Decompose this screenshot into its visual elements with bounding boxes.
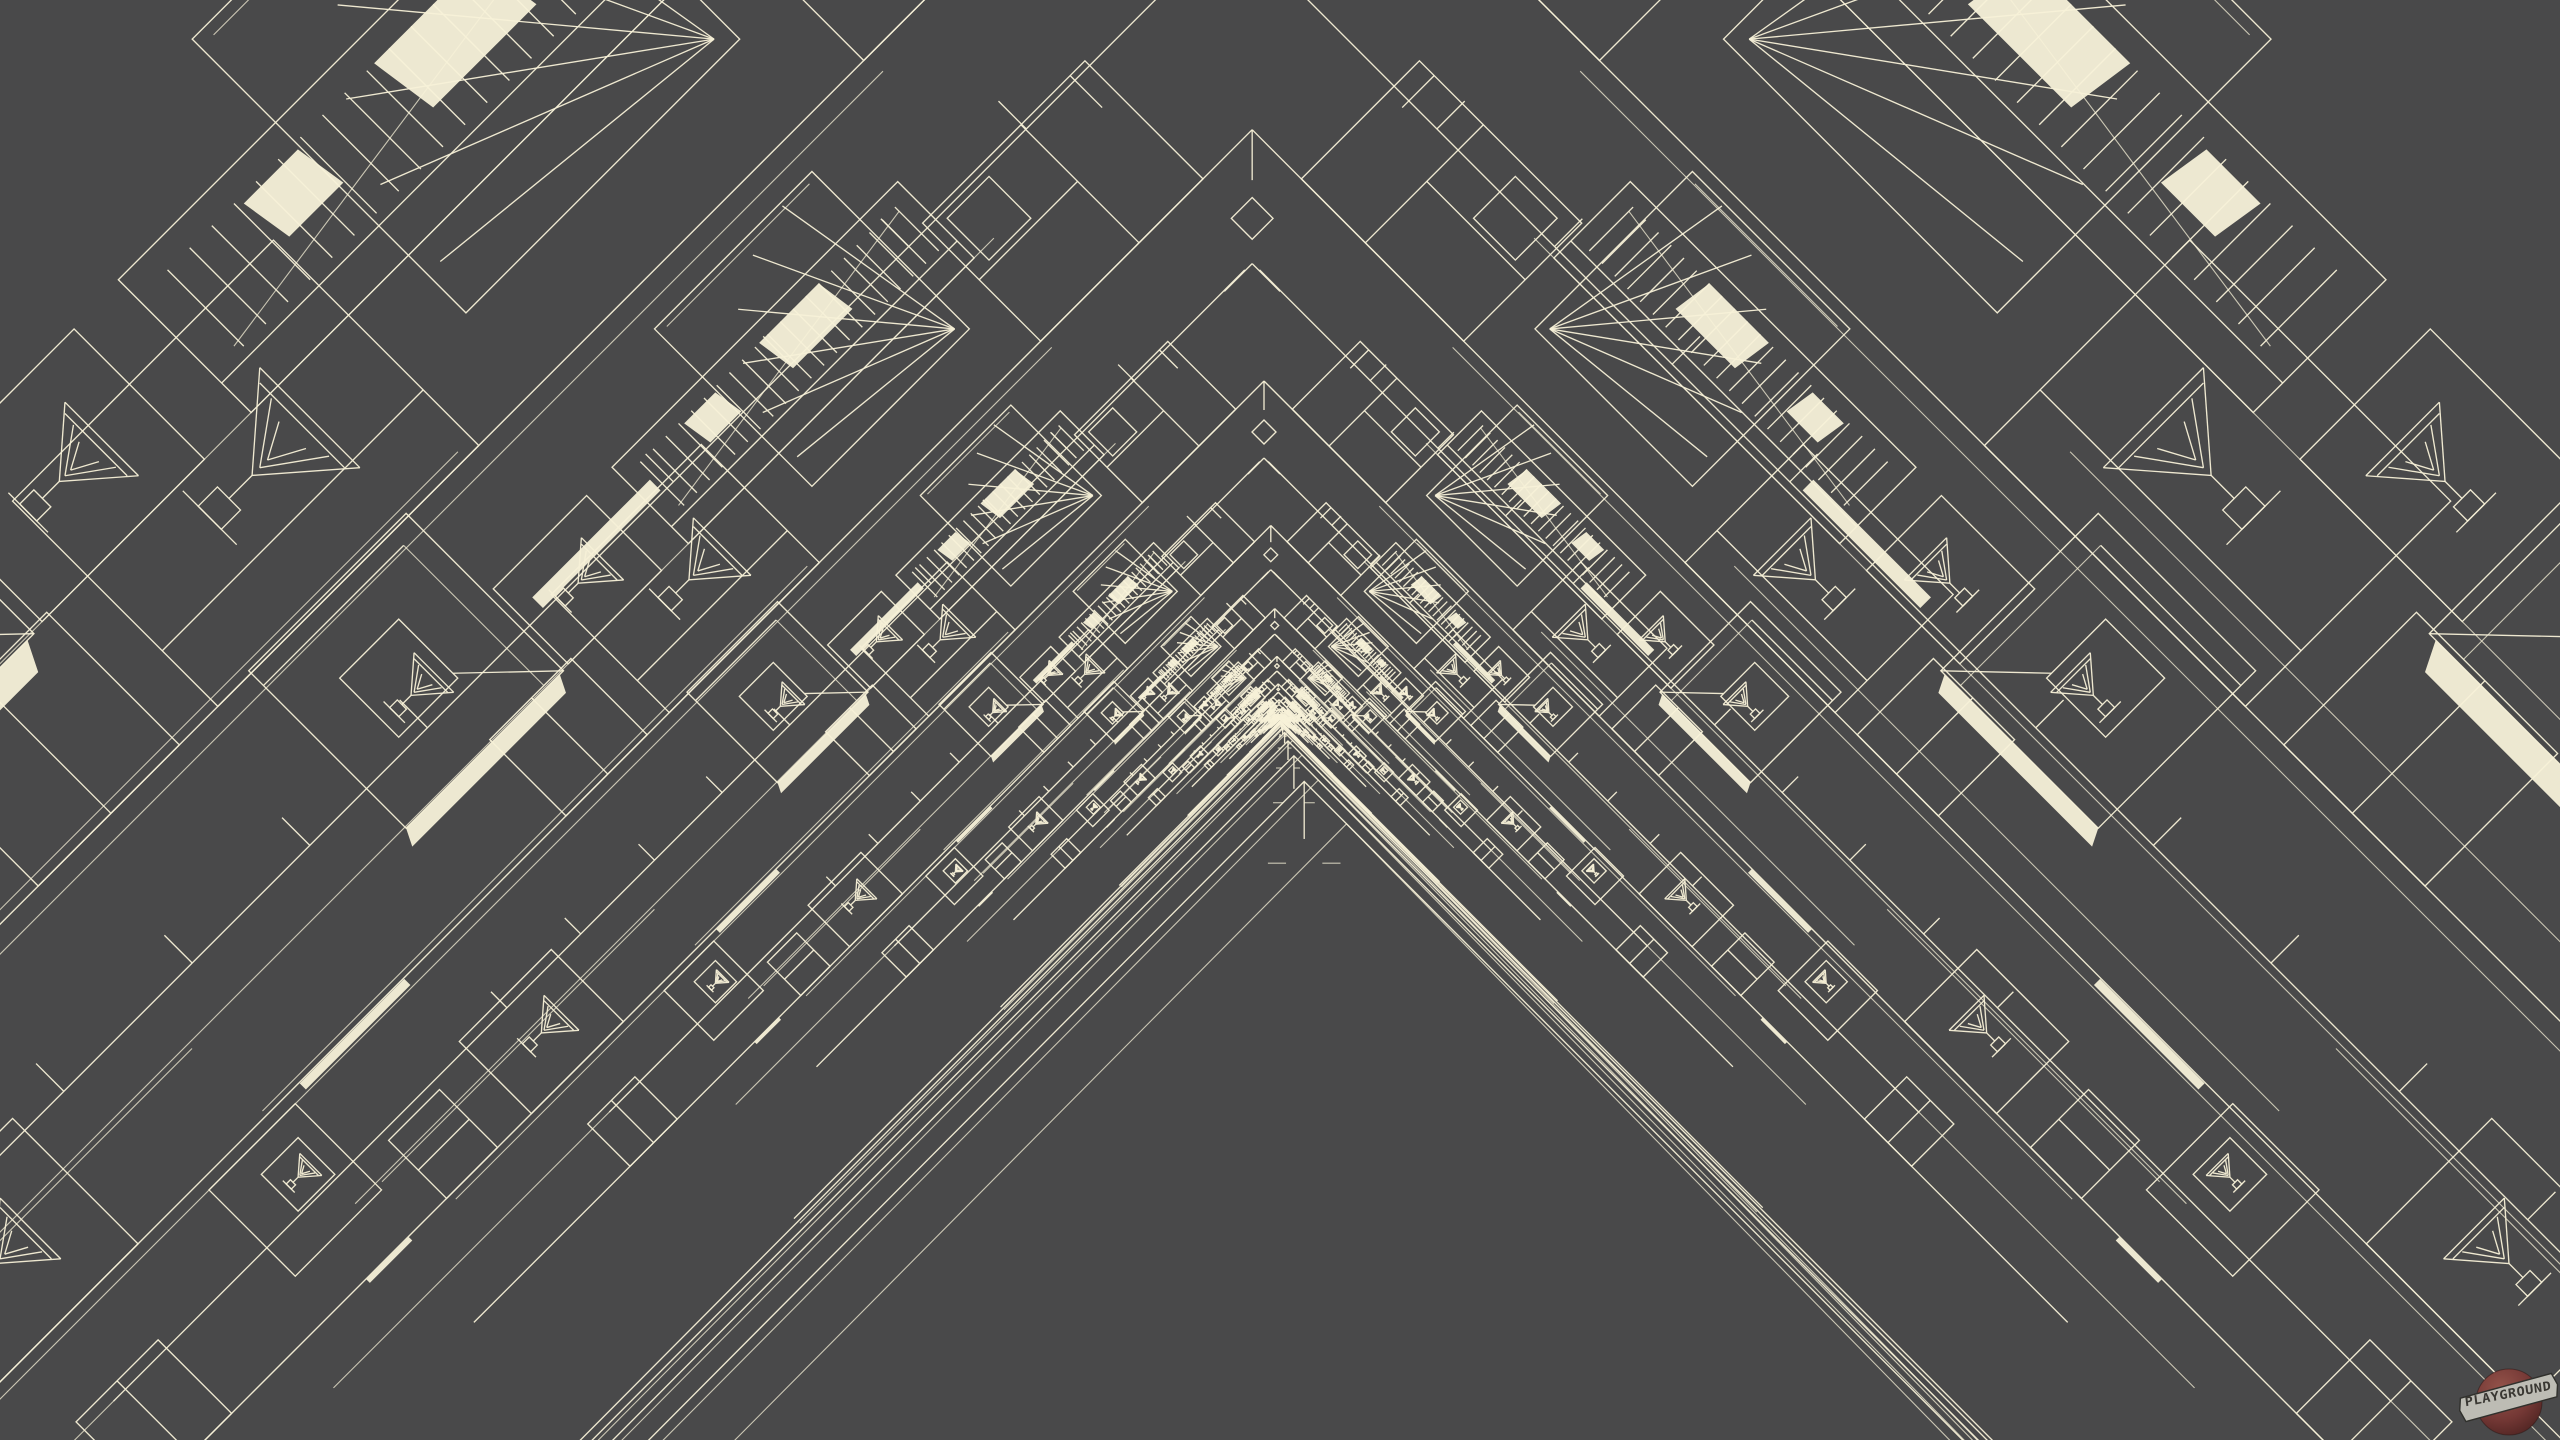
isometric-fractal-scene: PLAYGROUND — [0, 0, 2560, 1440]
game-viewport[interactable]: PLAYGROUND — [0, 0, 2560, 1440]
